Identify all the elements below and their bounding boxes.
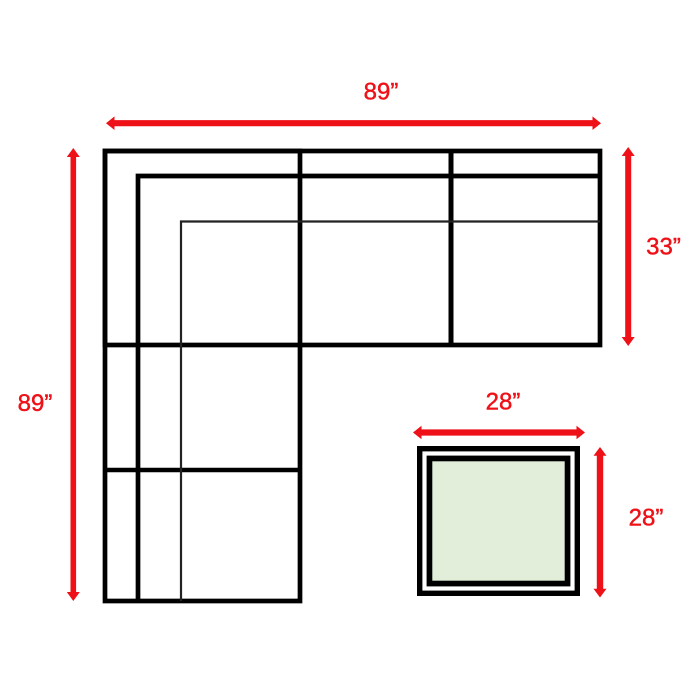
svg-text:28”: 28”	[629, 505, 664, 532]
svg-text:89”: 89”	[18, 390, 53, 417]
svg-text:89”: 89”	[364, 79, 399, 106]
svg-text:33”: 33”	[646, 234, 681, 261]
svg-text:28”: 28”	[486, 389, 521, 416]
